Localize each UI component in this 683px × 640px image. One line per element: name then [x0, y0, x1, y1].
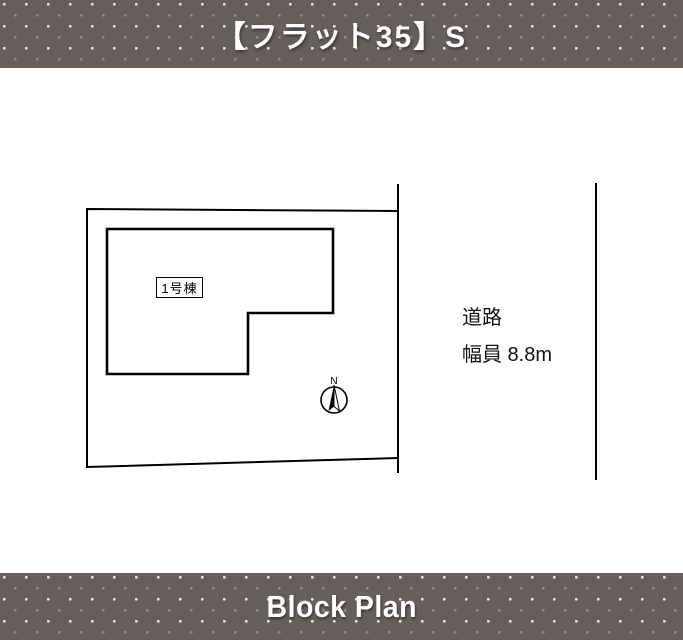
road-label: 道路 [462, 306, 502, 330]
building-outline [107, 229, 333, 374]
footer-band: Block Plan [0, 573, 683, 640]
site-boundary-outline [87, 209, 398, 467]
footer-title: Block Plan [266, 589, 416, 625]
header-title: 【フラット35】S [216, 12, 467, 56]
header-band: 【フラット35】S [0, 0, 683, 68]
road-width-label: 幅員 8.8m [462, 343, 552, 367]
block-plan-page: 【フラット35】S N 1号棟 道路 幅員 8.8m [0, 0, 683, 640]
north-label: N [330, 376, 337, 387]
plan-area: N 1号棟 道路 幅員 8.8m [0, 68, 683, 573]
building-label-box: 1号棟 [156, 277, 203, 298]
building-label: 1号棟 [161, 278, 197, 297]
plan-canvas: N [0, 68, 683, 573]
north-compass-icon: N [321, 376, 347, 413]
